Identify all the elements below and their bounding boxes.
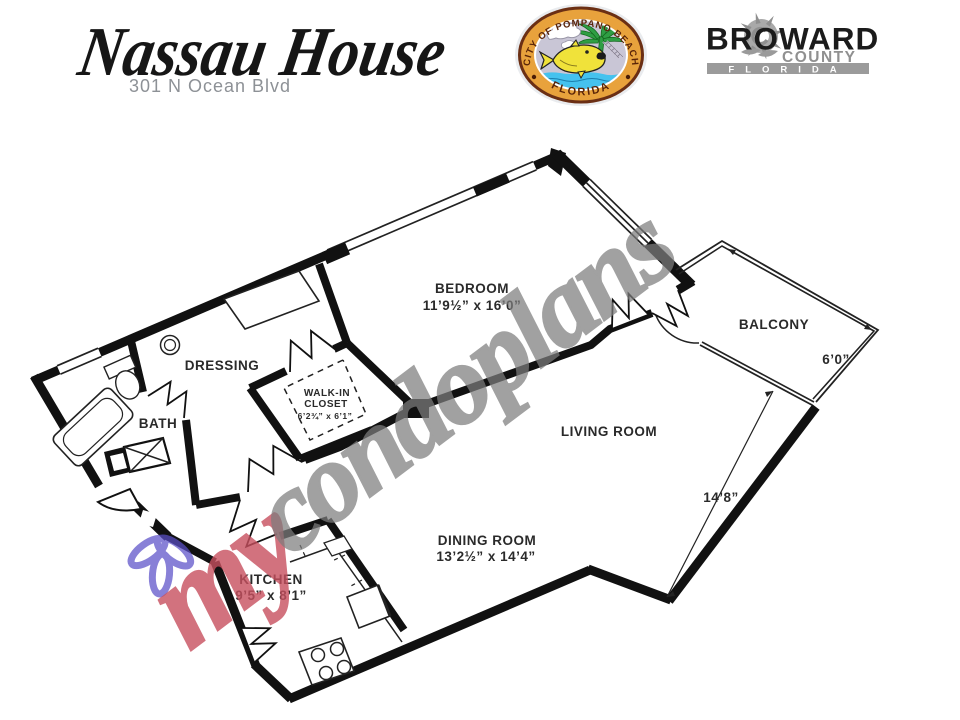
svg-text:14’8”: 14’8” (703, 490, 739, 505)
svg-text:LIVING ROOM: LIVING ROOM (561, 424, 657, 439)
svg-text:BALCONY: BALCONY (739, 317, 809, 332)
svg-text:301 N Ocean Blvd: 301 N Ocean Blvd (129, 76, 291, 96)
svg-text:DRESSING: DRESSING (185, 358, 260, 373)
svg-text:13’2½” x 14’4”: 13’2½” x 14’4” (436, 549, 535, 564)
svg-text:FLORIDA: FLORIDA (728, 65, 847, 76)
svg-text:6’0”: 6’0” (822, 352, 850, 367)
svg-text:BATH: BATH (139, 416, 178, 431)
svg-text:DINING ROOM: DINING ROOM (438, 533, 537, 548)
